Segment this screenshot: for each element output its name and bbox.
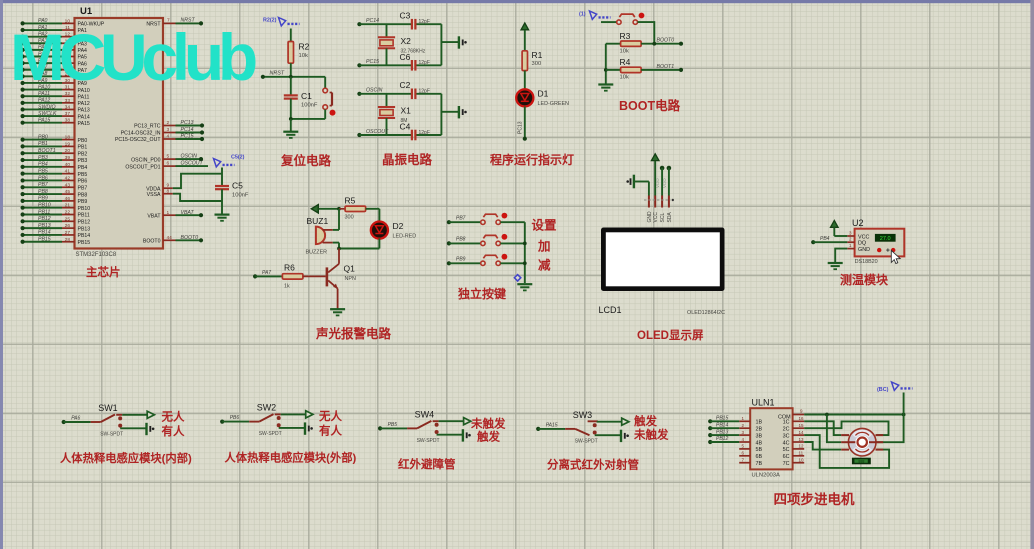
svg-text:VDD: VDD xyxy=(662,178,667,188)
svg-text:未触发: 未触发 xyxy=(470,416,506,430)
svg-text:VBAT: VBAT xyxy=(181,210,195,216)
svg-text:19: 19 xyxy=(65,141,71,147)
svg-text:SW3: SW3 xyxy=(573,410,593,420)
svg-text:有人: 有人 xyxy=(319,423,342,437)
svg-text:C5: C5 xyxy=(232,181,243,191)
svg-text:无人: 无人 xyxy=(318,409,342,423)
svg-text:14: 14 xyxy=(799,430,805,435)
svg-text:26: 26 xyxy=(65,223,71,229)
svg-text:10k: 10k xyxy=(299,53,308,59)
svg-text:12pF: 12pF xyxy=(419,60,430,66)
svg-text:15: 15 xyxy=(799,423,805,428)
svg-text:(1): (1) xyxy=(579,12,586,18)
svg-text:DS18B20: DS18B20 xyxy=(855,259,878,265)
svg-text:100nF: 100nF xyxy=(232,193,249,199)
svg-text:28: 28 xyxy=(65,237,71,243)
svg-text:SDA: SDA xyxy=(667,212,673,223)
svg-text:27.0: 27.0 xyxy=(880,236,891,242)
svg-text:PB13: PB13 xyxy=(716,429,728,435)
svg-text:LED-GREEN: LED-GREEN xyxy=(538,101,570,107)
svg-text:PB6: PB6 xyxy=(230,415,240,421)
svg-text:40: 40 xyxy=(65,162,71,168)
svg-text:4: 4 xyxy=(167,134,170,140)
svg-text:PA15: PA15 xyxy=(38,118,50,124)
svg-text:9: 9 xyxy=(167,182,170,188)
svg-text:OSCOUT: OSCOUT xyxy=(181,161,204,167)
svg-text:20: 20 xyxy=(65,148,71,154)
svg-text:13: 13 xyxy=(799,437,805,442)
svg-text:触发: 触发 xyxy=(633,414,657,428)
svg-text:PB12: PB12 xyxy=(38,216,51,222)
svg-text:PB9: PB9 xyxy=(38,196,48,202)
svg-text:C1: C1 xyxy=(301,91,312,101)
svg-text:38: 38 xyxy=(65,118,71,124)
svg-text:红外避障管: 红外避障管 xyxy=(398,457,456,471)
svg-text:SWDIO: SWDIO xyxy=(38,104,56,110)
svg-text:U1: U1 xyxy=(80,6,93,17)
svg-text:PB10: PB10 xyxy=(78,206,91,212)
svg-text:BUZZER: BUZZER xyxy=(306,250,328,256)
svg-text:PA14: PA14 xyxy=(78,114,90,120)
svg-text:VDD: VDD xyxy=(655,178,660,188)
svg-text:触发: 触发 xyxy=(476,430,500,444)
svg-text:11: 11 xyxy=(799,451,804,456)
svg-text:12: 12 xyxy=(799,444,805,449)
svg-text:主芯片: 主芯片 xyxy=(86,265,121,279)
svg-text:BOOT电路: BOOT电路 xyxy=(619,98,681,113)
svg-text:16: 16 xyxy=(799,416,805,421)
svg-text:D2: D2 xyxy=(393,221,404,231)
svg-text:PB13: PB13 xyxy=(78,226,91,232)
svg-text:PB15: PB15 xyxy=(78,240,91,246)
svg-text:45: 45 xyxy=(65,189,71,195)
svg-text:4C: 4C xyxy=(783,440,790,446)
svg-text:2B: 2B xyxy=(756,427,763,433)
svg-text:2C: 2C xyxy=(783,427,790,433)
svg-text:PC13_RTC: PC13_RTC xyxy=(134,124,161,130)
svg-text:888: 888 xyxy=(858,460,864,464)
svg-text:PB7: PB7 xyxy=(38,182,49,188)
svg-text:R6: R6 xyxy=(284,263,295,273)
svg-text:12pF: 12pF xyxy=(419,130,430,136)
svg-text:ULN2003A: ULN2003A xyxy=(752,473,780,479)
svg-text:34: 34 xyxy=(65,104,71,110)
svg-text:10k: 10k xyxy=(620,49,629,55)
svg-text:声光报警电路: 声光报警电路 xyxy=(315,326,392,341)
svg-text:3B: 3B xyxy=(756,433,763,439)
svg-text:PB12: PB12 xyxy=(716,436,728,442)
svg-text:PB14: PB14 xyxy=(38,230,51,236)
svg-text:PB6: PB6 xyxy=(78,179,88,185)
svg-text:Q1: Q1 xyxy=(344,264,356,274)
svg-text:PB1: PB1 xyxy=(38,141,48,147)
svg-text:PB1: PB1 xyxy=(78,145,88,151)
svg-text:VCC: VCC xyxy=(653,212,659,223)
svg-text:PA7: PA7 xyxy=(262,270,271,276)
svg-text:PB8: PB8 xyxy=(78,192,88,198)
svg-text:LCD1: LCD1 xyxy=(599,305,622,315)
svg-text:PB9: PB9 xyxy=(456,257,466,263)
svg-text:1: 1 xyxy=(167,210,170,216)
svg-text:GND: GND xyxy=(858,247,870,253)
svg-text:6C: 6C xyxy=(783,454,790,460)
svg-text:BOOT0: BOOT0 xyxy=(181,235,199,241)
svg-text:SWCLK: SWCLK xyxy=(38,111,57,117)
svg-text:未触发: 未触发 xyxy=(633,427,669,441)
svg-text:减: 减 xyxy=(538,258,551,273)
svg-text:C4: C4 xyxy=(400,121,411,131)
svg-text:PA12: PA12 xyxy=(78,101,90,107)
svg-text:5B: 5B xyxy=(756,447,763,453)
svg-text:PB4: PB4 xyxy=(78,165,88,171)
svg-text:SW2: SW2 xyxy=(257,403,277,413)
svg-text:10k: 10k xyxy=(620,75,629,81)
svg-text:PB3: PB3 xyxy=(78,158,88,164)
svg-text:300: 300 xyxy=(532,61,542,67)
svg-text:PC15: PC15 xyxy=(181,134,194,140)
svg-text:PB4: PB4 xyxy=(820,236,830,242)
svg-text:有人: 有人 xyxy=(162,424,185,438)
svg-text:PB10: PB10 xyxy=(38,203,51,209)
svg-text:6: 6 xyxy=(167,161,170,167)
svg-text:46: 46 xyxy=(65,196,71,202)
svg-text:PC14-OSC32_IN: PC14-OSC32_IN xyxy=(121,131,161,137)
svg-text:PB15: PB15 xyxy=(38,237,51,243)
svg-text:12pF: 12pF xyxy=(419,19,430,25)
svg-text:人体热释电感应模块(内部): 人体热释电感应模块(内部) xyxy=(60,451,192,465)
svg-text:6B: 6B xyxy=(756,454,763,460)
svg-text:PB7: PB7 xyxy=(456,215,466,221)
svg-text:GND: GND xyxy=(647,211,653,223)
svg-text:OSCOUT: OSCOUT xyxy=(366,129,389,135)
svg-text:10: 10 xyxy=(799,458,805,463)
svg-text:C3: C3 xyxy=(400,11,411,21)
svg-text:PB4: PB4 xyxy=(38,162,48,168)
svg-text:C2: C2 xyxy=(400,80,411,90)
svg-text:5: 5 xyxy=(167,154,170,160)
svg-text:PB7: PB7 xyxy=(78,185,88,191)
svg-text:PB13: PB13 xyxy=(38,223,51,229)
svg-text:NRST: NRST xyxy=(270,71,285,77)
svg-text:STM32F103C8: STM32F103C8 xyxy=(76,252,117,258)
svg-text:1k: 1k xyxy=(284,284,290,290)
svg-text:OSCIN_PD0: OSCIN_PD0 xyxy=(131,157,161,163)
svg-text:PB11: PB11 xyxy=(78,213,90,219)
svg-text:PB9: PB9 xyxy=(78,199,88,205)
svg-text:21: 21 xyxy=(65,203,71,209)
svg-text:PB5: PB5 xyxy=(78,172,88,178)
svg-text:X2: X2 xyxy=(401,36,412,46)
svg-text:OSCIN: OSCIN xyxy=(181,154,198,160)
svg-text:25: 25 xyxy=(65,216,71,222)
svg-text:SW-SPDT: SW-SPDT xyxy=(575,438,598,444)
svg-text:分离式红外对射管: 分离式红外对射管 xyxy=(547,458,639,472)
svg-text:人体热释电感应模块(外部): 人体热释电感应模块(外部) xyxy=(225,451,357,465)
svg-text:3C: 3C xyxy=(783,433,790,439)
svg-text:PA13: PA13 xyxy=(78,108,90,114)
svg-text:PC15: PC15 xyxy=(366,59,379,65)
svg-text:43: 43 xyxy=(65,182,71,188)
svg-text:PB5: PB5 xyxy=(388,422,398,428)
svg-text:PB11: PB11 xyxy=(38,209,50,215)
svg-text:PA6: PA6 xyxy=(71,415,80,421)
svg-text:VSSA: VSSA xyxy=(147,192,161,198)
svg-text:SW-SPDT: SW-SPDT xyxy=(417,438,440,444)
svg-text:LED-RED: LED-RED xyxy=(393,234,417,240)
svg-text:100nF: 100nF xyxy=(301,103,318,109)
svg-text:SW1: SW1 xyxy=(98,403,118,413)
svg-text:12pF: 12pF xyxy=(419,89,430,95)
svg-text:PB14: PB14 xyxy=(78,233,91,239)
svg-text:PC14: PC14 xyxy=(366,18,379,24)
svg-text:独立按键: 独立按键 xyxy=(457,286,506,301)
svg-text:PB0: PB0 xyxy=(38,134,48,140)
svg-text:PA11: PA11 xyxy=(78,94,90,100)
svg-text:PB15: PB15 xyxy=(716,416,728,422)
svg-text:四项步进电机: 四项步进电机 xyxy=(774,491,855,507)
svg-text:ULN1: ULN1 xyxy=(752,398,775,408)
svg-text:设置: 设置 xyxy=(532,218,558,233)
svg-text:程序运行指示灯: 程序运行指示灯 xyxy=(490,152,574,167)
svg-text:PC13: PC13 xyxy=(517,121,523,134)
svg-text:R4: R4 xyxy=(620,57,631,67)
svg-text:5C: 5C xyxy=(783,447,790,453)
svg-text:PA15: PA15 xyxy=(78,121,90,127)
svg-text:R2: R2 xyxy=(299,42,310,52)
svg-text:PC14: PC14 xyxy=(181,127,194,133)
svg-text:300: 300 xyxy=(345,215,354,221)
svg-text:DQ: DQ xyxy=(858,241,866,247)
svg-text:7C: 7C xyxy=(783,461,790,467)
svg-text:33: 33 xyxy=(65,98,71,104)
svg-text:1B: 1B xyxy=(756,420,763,426)
svg-text:27: 27 xyxy=(65,230,71,236)
svg-text:PB5: PB5 xyxy=(38,168,48,174)
svg-text:OSCOUT_PD1: OSCOUT_PD1 xyxy=(125,164,160,170)
svg-text:OLED12864I2C: OLED12864I2C xyxy=(687,310,725,316)
svg-text:18: 18 xyxy=(65,135,71,141)
svg-text:BUZ1: BUZ1 xyxy=(307,216,329,226)
svg-text:OLED显示屏: OLED显示屏 xyxy=(637,329,704,342)
svg-text:测温模块: 测温模块 xyxy=(840,272,889,287)
svg-text:BOOT0: BOOT0 xyxy=(657,38,675,44)
svg-text:41: 41 xyxy=(65,169,71,175)
svg-text:22: 22 xyxy=(65,210,71,216)
svg-text:2: 2 xyxy=(167,120,170,126)
svg-text:BOOT0: BOOT0 xyxy=(143,239,161,245)
svg-text:复位电路: 复位电路 xyxy=(280,153,332,168)
svg-text:D1: D1 xyxy=(538,89,549,99)
svg-text:8: 8 xyxy=(167,188,170,194)
svg-text:PB0: PB0 xyxy=(78,138,88,144)
svg-text:3: 3 xyxy=(167,127,170,133)
svg-text:R2(2): R2(2) xyxy=(263,18,277,24)
svg-text:加: 加 xyxy=(537,239,551,254)
svg-text:44: 44 xyxy=(167,235,173,241)
svg-text:X1: X1 xyxy=(401,106,412,116)
svg-text:R3: R3 xyxy=(620,31,631,41)
svg-text:PB8: PB8 xyxy=(38,189,48,195)
svg-text:PA15: PA15 xyxy=(546,422,558,428)
svg-text:SW-SPDT: SW-SPDT xyxy=(100,431,123,437)
svg-text:U2: U2 xyxy=(852,218,864,228)
svg-text:PC13: PC13 xyxy=(181,120,194,126)
svg-text:42: 42 xyxy=(65,175,71,181)
svg-text:PC15-OSC32_OUT: PC15-OSC32_OUT xyxy=(115,137,161,143)
svg-text:PB2: PB2 xyxy=(78,151,88,157)
svg-text:SW-SPDT: SW-SPDT xyxy=(259,431,282,437)
svg-text:MCUclub: MCUclub xyxy=(10,20,256,94)
svg-text:PB12: PB12 xyxy=(78,220,91,226)
svg-text:(BC): (BC) xyxy=(877,387,889,393)
svg-text:R1: R1 xyxy=(532,50,543,60)
svg-text:PB14: PB14 xyxy=(716,422,728,428)
svg-text:PA12: PA12 xyxy=(38,98,50,104)
svg-text:4B: 4B xyxy=(756,440,763,446)
svg-text:SCL: SCL xyxy=(660,213,666,223)
svg-text:VCC: VCC xyxy=(858,234,869,240)
svg-text:SW4: SW4 xyxy=(415,409,435,419)
svg-text:无人: 无人 xyxy=(161,410,185,424)
svg-text:C5(2): C5(2) xyxy=(231,155,245,161)
svg-text:37: 37 xyxy=(65,111,71,117)
svg-text:R5: R5 xyxy=(345,196,356,206)
svg-text:BOOT1: BOOT1 xyxy=(38,148,56,154)
svg-text:NPN: NPN xyxy=(345,276,356,282)
svg-text:VBAT: VBAT xyxy=(147,213,161,219)
svg-text:PB8: PB8 xyxy=(456,237,466,243)
svg-text:晶振电路: 晶振电路 xyxy=(382,152,433,167)
svg-text:39: 39 xyxy=(65,155,71,161)
svg-text:BOOT1: BOOT1 xyxy=(657,64,675,70)
svg-text:C6: C6 xyxy=(400,52,411,62)
svg-text:7B: 7B xyxy=(756,461,763,467)
svg-text:OSCIN: OSCIN xyxy=(366,88,383,94)
svg-text:PB6: PB6 xyxy=(38,175,48,181)
svg-text:PB3: PB3 xyxy=(38,155,48,161)
svg-text:1C: 1C xyxy=(783,420,790,426)
